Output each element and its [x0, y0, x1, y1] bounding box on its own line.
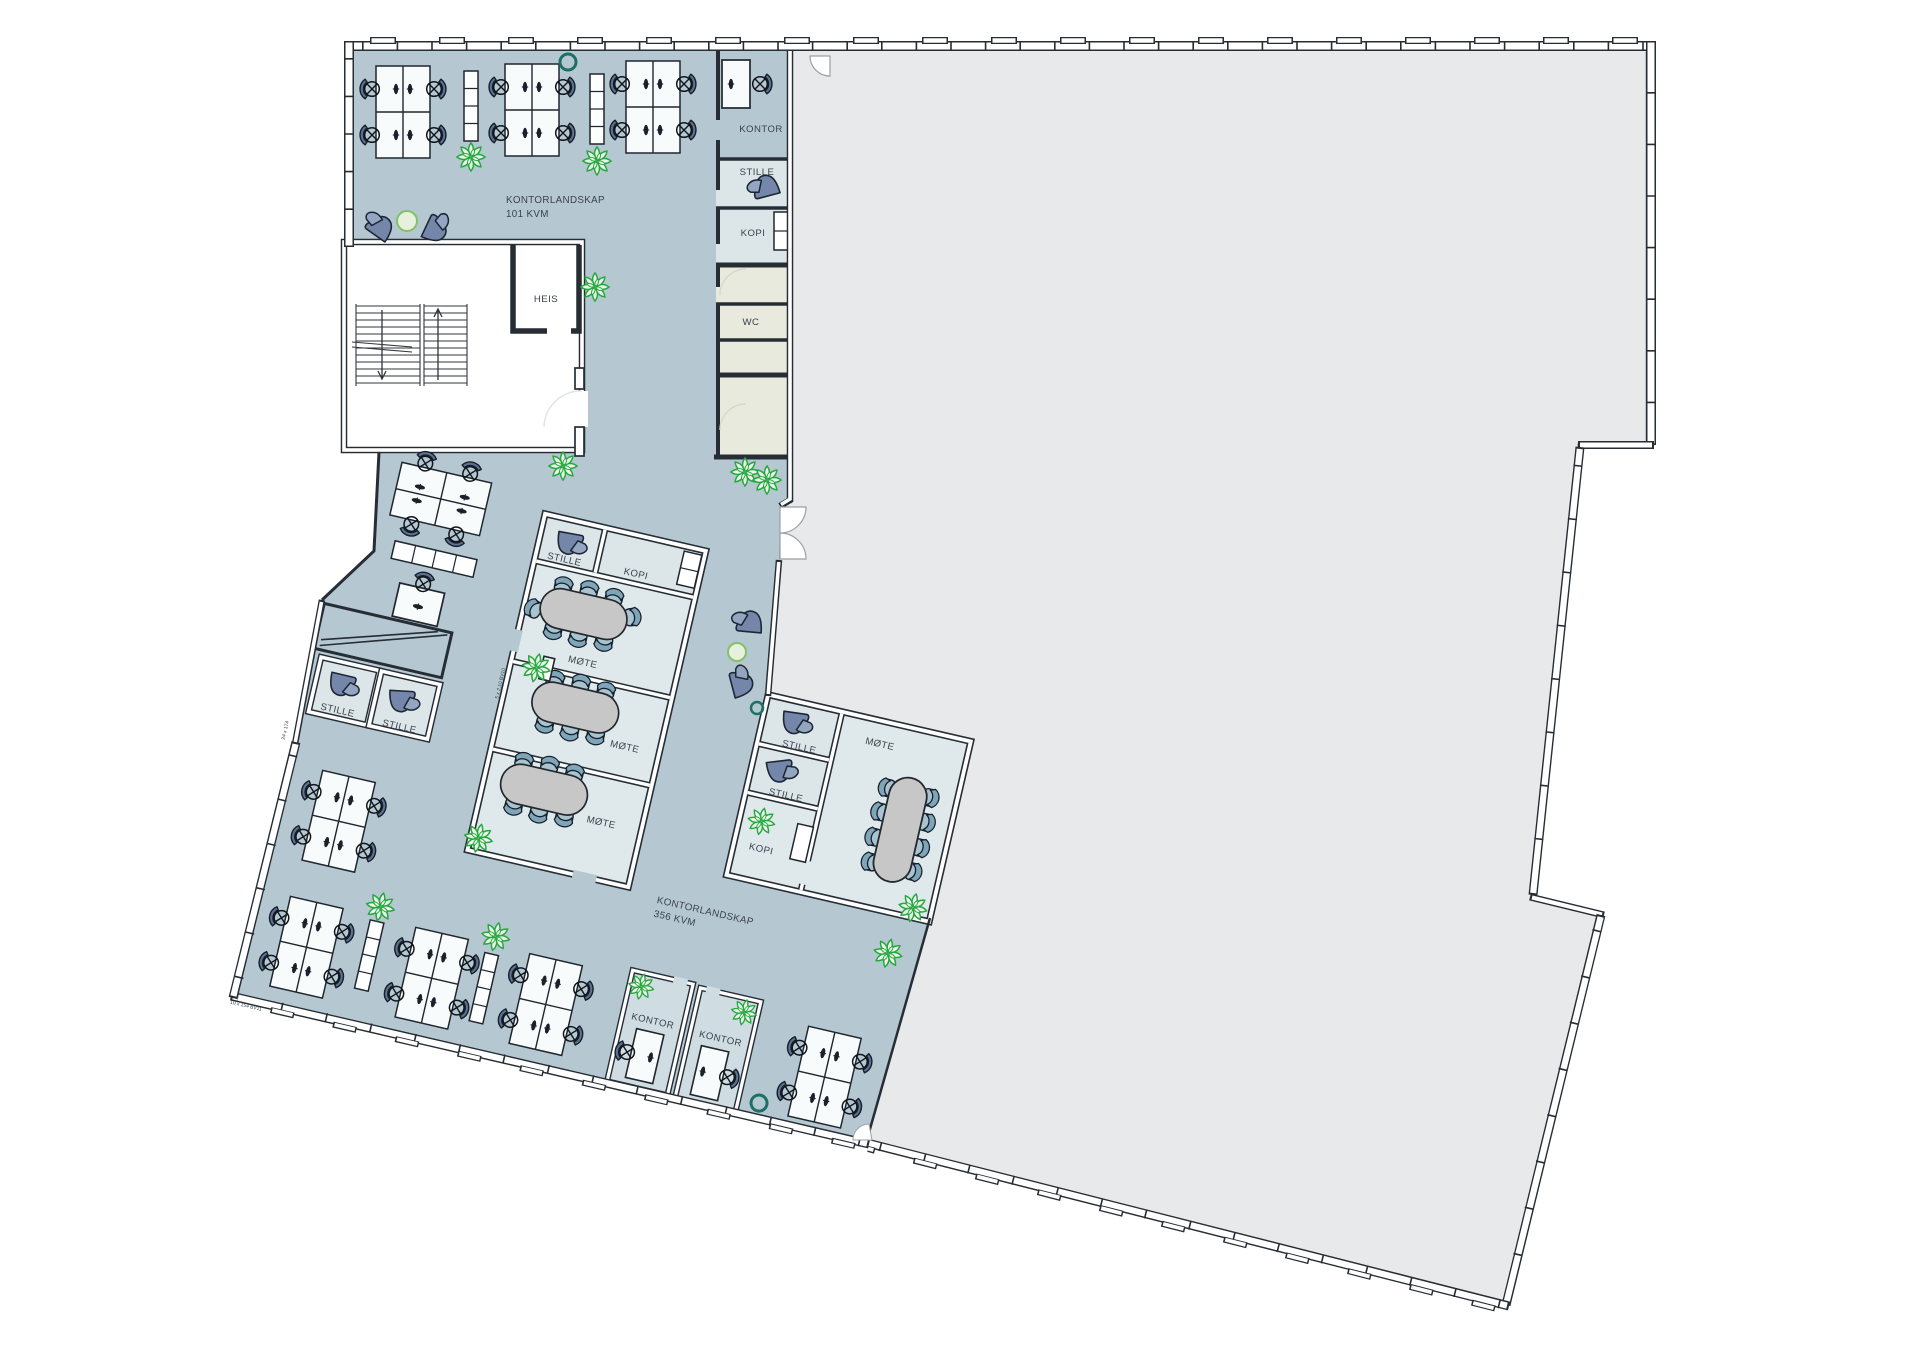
- svg-text:KOPI: KOPI: [741, 228, 766, 239]
- svg-text:HEIS: HEIS: [534, 294, 558, 305]
- svg-text:24 x 174: 24 x 174: [281, 720, 291, 740]
- svg-text:KONTORLANDSKAP: KONTORLANDSKAP: [506, 195, 605, 206]
- svg-text:WC: WC: [743, 317, 760, 328]
- svg-text:KONTOR: KONTOR: [739, 124, 783, 135]
- svg-text:101 KVM: 101 KVM: [506, 209, 549, 220]
- svg-text:STILLE: STILLE: [740, 167, 775, 178]
